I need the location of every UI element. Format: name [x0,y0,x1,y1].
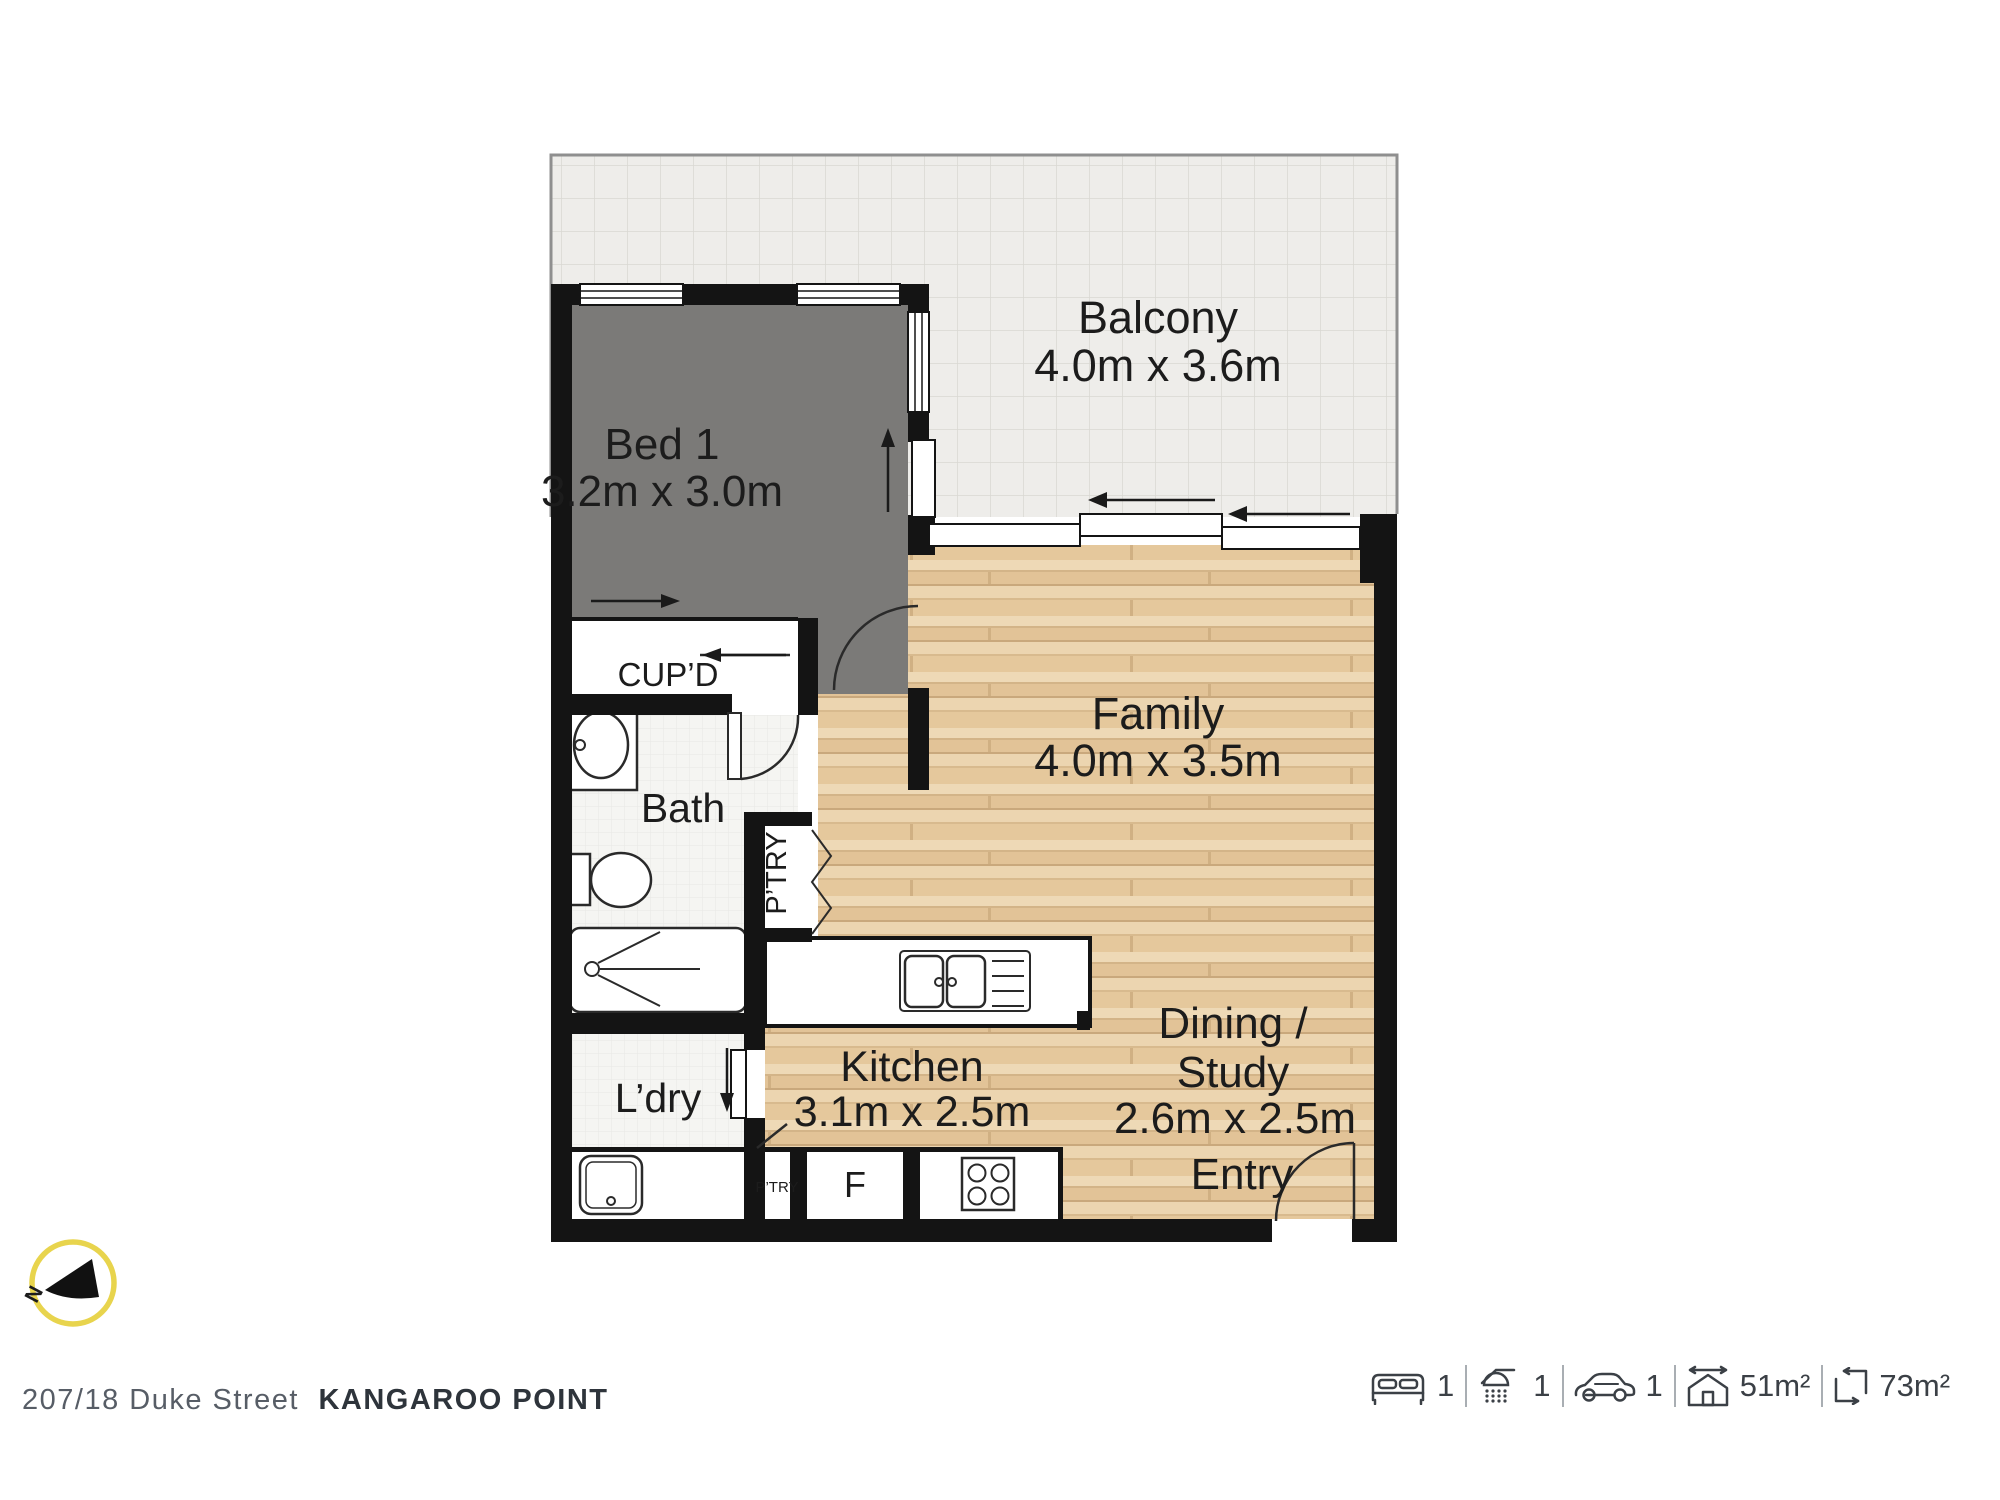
family-dims: 4.0m x 3.5m [1034,735,1282,786]
laundry-label: L’dry [615,1075,702,1121]
floorplan-page: Balcony 4.0m x 3.6m Bed 1 3.2m x 3.0m Fa… [0,0,2000,1500]
north-label: N [21,1282,48,1306]
shower [570,928,746,1012]
entry-label: Entry [1191,1150,1294,1199]
floorplan-drawing: Balcony 4.0m x 3.6m Bed 1 3.2m x 3.0m Fa… [0,0,2000,1500]
laundry-tub [580,1156,642,1214]
pantry-small-label: P’TRY [755,1179,798,1196]
property-stats: 1 1 1 51m² [1368,1364,1952,1408]
house-area-icon [1685,1364,1731,1408]
dining-label-line1: Dining / [1158,999,1308,1048]
cars-count: 1 [1646,1368,1663,1404]
stats-divider [1465,1365,1467,1407]
family-label: Family [1092,688,1225,739]
property-address: 207/18 Duke Street KANGAROO POINT [22,1384,609,1417]
balcony-dims: 4.0m x 3.6m [1034,340,1282,391]
cupboard-label: CUP’D [618,656,719,693]
stats-divider [1562,1365,1564,1407]
toilet [562,853,651,907]
balcony-label: Balcony [1078,292,1239,343]
internal-area-value: 51m² [1740,1368,1811,1404]
bath-label: Bath [641,785,725,831]
dining-label-line2: Study [1177,1048,1290,1097]
north-compass: N [20,1234,130,1344]
bed-icon [1368,1367,1428,1405]
fridge-label: F [844,1164,866,1205]
cooktop [962,1158,1014,1210]
car-icon [1573,1369,1637,1403]
kitchen-dims: 3.1m x 2.5m [794,1088,1031,1136]
pantry-label: P’TRY [761,831,793,914]
bed1-window-north-2 [797,284,900,305]
bed1-label: Bed 1 [605,420,720,469]
stats-divider [1821,1365,1823,1407]
address-street: 207/18 Duke Street [22,1384,299,1416]
north-arrow-icon [45,1259,99,1298]
bed1-balcony-slider [912,440,935,517]
bed1-window-north-1 [580,284,683,305]
kitchen-label: Kitchen [840,1043,983,1091]
laundry-door-panel [731,1050,746,1118]
kitchen-sink [900,951,1030,1011]
dining-dims: 2.6m x 2.5m [1114,1094,1356,1143]
land-area-icon [1832,1367,1870,1405]
beds-count: 1 [1437,1368,1454,1404]
showers-count: 1 [1533,1368,1550,1404]
bed1-dims: 3.2m x 3.0m [541,467,783,516]
bed1-window-east [908,312,929,412]
family-balcony-slider [929,514,1360,549]
shower-icon [1476,1365,1524,1407]
stats-divider [1674,1365,1676,1407]
total-area-value: 73m² [1879,1368,1950,1404]
address-suburb: KANGAROO POINT [318,1384,608,1416]
